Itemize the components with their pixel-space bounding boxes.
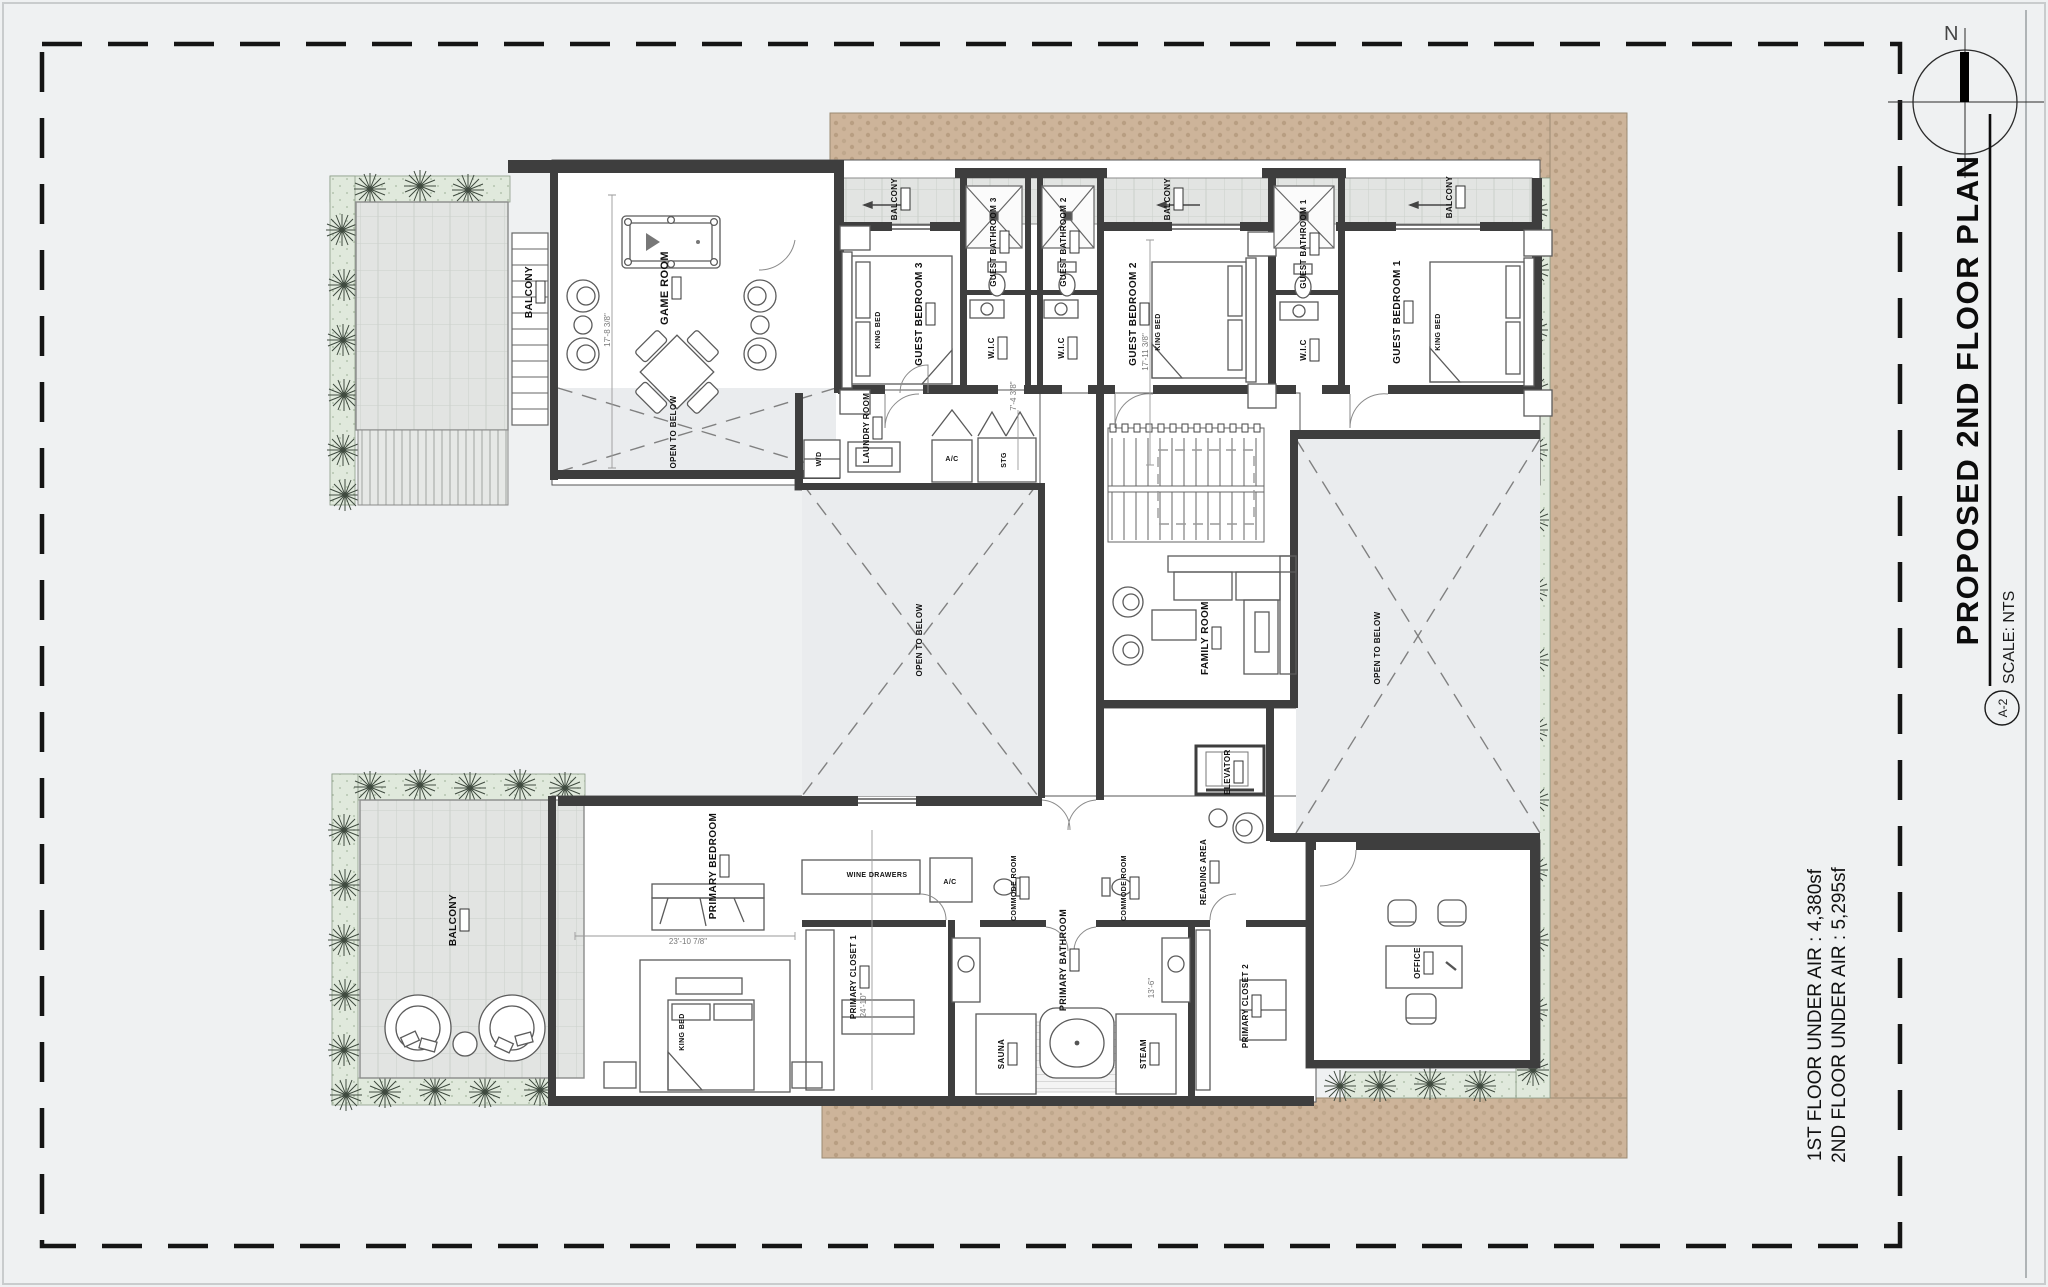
svg-text:KING BED: KING BED (679, 1013, 686, 1050)
svg-text:ELEVATOR: ELEVATOR (1223, 749, 1232, 794)
svg-text:BALCONY: BALCONY (1445, 176, 1454, 219)
svg-text:GUEST BEDROOM 1: GUEST BEDROOM 1 (1392, 260, 1403, 364)
compass-needle (1960, 52, 1969, 102)
label-ac-closet-1: A/C (945, 456, 958, 463)
svg-text:SAUNA: SAUNA (997, 1039, 1006, 1069)
svg-text:GUEST BEDROOM 2: GUEST BEDROOM 2 (1128, 262, 1139, 366)
label-storage: STG (1001, 452, 1008, 468)
label-open-to-below-center: OPEN TO BELOW (915, 603, 924, 676)
svg-text:GUEST BATHROOM 1: GUEST BATHROOM 1 (1299, 199, 1308, 289)
svg-text:GUEST BATHROOM 3: GUEST BATHROOM 3 (989, 197, 998, 287)
svg-text:STEAM: STEAM (1139, 1039, 1148, 1069)
label-king-bed-primary: KING BED (679, 1013, 686, 1050)
svg-text:W.I.C: W.I.C (1057, 337, 1066, 359)
area-notes: 1ST FLOOR UNDER AIR : 4,380sf 2ND FLOOR … (1805, 866, 1850, 1162)
label-king-bed-1: KING BED (1435, 313, 1442, 350)
svg-text:KING BED: KING BED (875, 311, 882, 348)
svg-text:OPEN TO BELOW: OPEN TO BELOW (915, 603, 924, 676)
svg-text:GAME ROOM: GAME ROOM (659, 251, 671, 325)
north-label: N (1944, 23, 1958, 45)
svg-text:FAMILY ROOM: FAMILY ROOM (1200, 601, 1211, 675)
svg-text:GUEST BEDROOM 3: GUEST BEDROOM 3 (914, 262, 925, 366)
svg-text:A/C: A/C (943, 879, 956, 886)
area-note-1st-floor: 1ST FLOOR UNDER AIR : 4,380sf (1805, 868, 1826, 1161)
svg-text:OFFICE: OFFICE (1413, 947, 1422, 979)
svg-text:PRIMARY BEDROOM: PRIMARY BEDROOM (708, 813, 719, 920)
svg-text:BALCONY: BALCONY (524, 266, 535, 318)
area-note-2nd-floor: 2ND FLOOR UNDER AIR : 5,295sf (1829, 866, 1850, 1162)
label-ac-closet-2: A/C (943, 879, 956, 886)
dim-primary-bath: 13'-6" (1147, 978, 1156, 999)
svg-text:OPEN TO BELOW: OPEN TO BELOW (669, 395, 678, 468)
dim-game-room: 17'-8 3/8" (603, 313, 612, 347)
svg-text:COMMODE ROOM: COMMODE ROOM (1121, 855, 1128, 921)
dim-primary-height: 24'-10" (859, 992, 868, 1017)
svg-text:READING AREA: READING AREA (1199, 839, 1208, 905)
svg-text:BALCONY: BALCONY (1163, 178, 1172, 221)
label-king-bed-2: KING BED (1155, 313, 1162, 350)
sheet-scale: SCALE: NTS (2001, 591, 2018, 684)
svg-text:COMMODE ROOM: COMMODE ROOM (1011, 855, 1018, 921)
svg-text:KING BED: KING BED (1155, 313, 1162, 350)
label-open-to-below-right: OPEN TO BELOW (1373, 611, 1382, 684)
drawing-sheet: BALCONYGAME ROOMOPEN TO BELOWGUEST BEDRO… (0, 0, 2048, 1287)
svg-text:PRIMARY CLOSET 1: PRIMARY CLOSET 1 (849, 935, 858, 1019)
title-block: PROPOSED 2ND FLOOR PLAN SCALE: NTS A-2 (1950, 114, 2019, 725)
label-open-to-below-left: OPEN TO BELOW (669, 395, 678, 468)
dim-guest-bedroom: 17'-11 3/8" (1141, 333, 1150, 371)
label-king-bed-3: KING BED (875, 311, 882, 348)
svg-text:BALCONY: BALCONY (448, 894, 459, 946)
svg-text:PRIMARY CLOSET 2: PRIMARY CLOSET 2 (1241, 964, 1250, 1048)
svg-text:GUEST BATHROOM 2: GUEST BATHROOM 2 (1059, 197, 1068, 287)
floor-plan-svg: BALCONYGAME ROOMOPEN TO BELOWGUEST BEDRO… (0, 0, 2048, 1287)
dim-wic: 7'-4 3/8" (1009, 381, 1018, 410)
dim-primary-width: 23'-10 7/8" (669, 937, 707, 946)
label-washer-dryer: W/D (816, 452, 823, 467)
svg-text:BALCONY: BALCONY (890, 178, 899, 221)
sheet-number: A-2 (1996, 698, 2010, 717)
svg-text:PRIMARY BATHROOM: PRIMARY BATHROOM (1058, 909, 1068, 1011)
svg-text:OPEN TO BELOW: OPEN TO BELOW (1373, 611, 1382, 684)
label-wine-drawers: WINE DRAWERS (847, 872, 908, 879)
svg-text:W.I.C: W.I.C (987, 337, 996, 359)
svg-text:LAUNDRY ROOM: LAUNDRY ROOM (862, 393, 871, 464)
svg-text:A/C: A/C (945, 456, 958, 463)
svg-text:W/D: W/D (816, 452, 823, 467)
svg-text:STG: STG (1001, 452, 1008, 468)
svg-text:W.I.C: W.I.C (1299, 339, 1308, 361)
svg-text:KING BED: KING BED (1435, 313, 1442, 350)
balcony-ladder (512, 233, 548, 425)
svg-text:WINE DRAWERS: WINE DRAWERS (847, 872, 908, 879)
sheet-title: PROPOSED 2ND FLOOR PLAN (1950, 155, 1985, 646)
stairs (1108, 424, 1264, 542)
